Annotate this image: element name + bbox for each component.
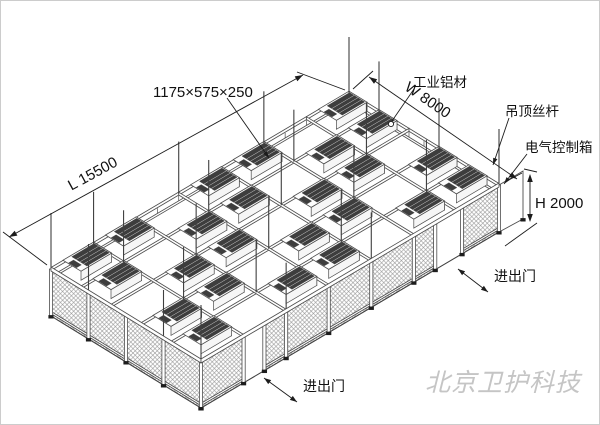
post-foot [496,231,501,234]
length-extension-line [297,72,345,90]
dim-arrow [295,75,303,81]
isometric-cleanroom-drawing: 1175×575×250 工业铝材 W 8000 吊顶丝杆 电气控制箱 L 15… [1,1,599,424]
height-dim-label: H 2000 [535,195,583,212]
ceiling-rod-leader [493,118,509,165]
post-foot [411,281,416,284]
wall-post [412,235,415,282]
post-foot [433,269,438,272]
post-foot [161,384,166,387]
dim-arrow [527,214,533,222]
wall-post [460,207,463,254]
wall-post [87,292,90,339]
control-box-label: 电气控制箱 [525,140,593,155]
leader-dot [388,121,393,126]
door-label-right: 进出门 [494,268,536,284]
door-label-bottom: 进出门 [303,378,345,394]
wall-post [199,361,202,408]
module-size-label: 1175×575×250 [153,84,253,101]
wall-post [327,286,330,333]
wall-post [285,311,288,358]
wall-post [263,324,266,371]
dim-arrow [9,231,17,237]
post-foot [284,357,289,360]
module-size-leader [227,98,269,158]
arrowhead [264,378,271,384]
post-foot [369,307,374,310]
ceiling-rod-label: 吊顶丝杆 [505,104,559,119]
post-foot [459,253,464,256]
wall-post [124,315,127,362]
wall-post [497,185,500,232]
wall-post [370,260,373,307]
arrowhead [458,269,465,275]
post-foot [198,407,203,410]
dim-arrow [527,174,533,182]
post-foot [241,382,246,385]
structure-scene [1,1,526,411]
end-wall-control-box [499,171,523,232]
wall-post [434,223,437,270]
height-extension-line [524,169,537,172]
wall-post [162,338,165,385]
post-foot [326,332,331,335]
dim-arrow [369,77,377,84]
width-extension-line [353,71,373,89]
post-foot [48,315,53,318]
arrowhead [290,396,297,402]
post-foot [123,361,128,364]
wall-post [49,269,52,316]
post-foot [520,218,525,221]
post-foot [262,370,267,373]
watermark: 北京卫护科技 [425,369,583,397]
length-dim-label: L 15500 [65,154,120,195]
drawing-canvas: 1175×575×250 工业铝材 W 8000 吊顶丝杆 电气控制箱 L 15… [0,0,600,425]
post-foot [86,338,91,341]
wall-post [242,336,245,383]
arrowhead [481,286,488,292]
